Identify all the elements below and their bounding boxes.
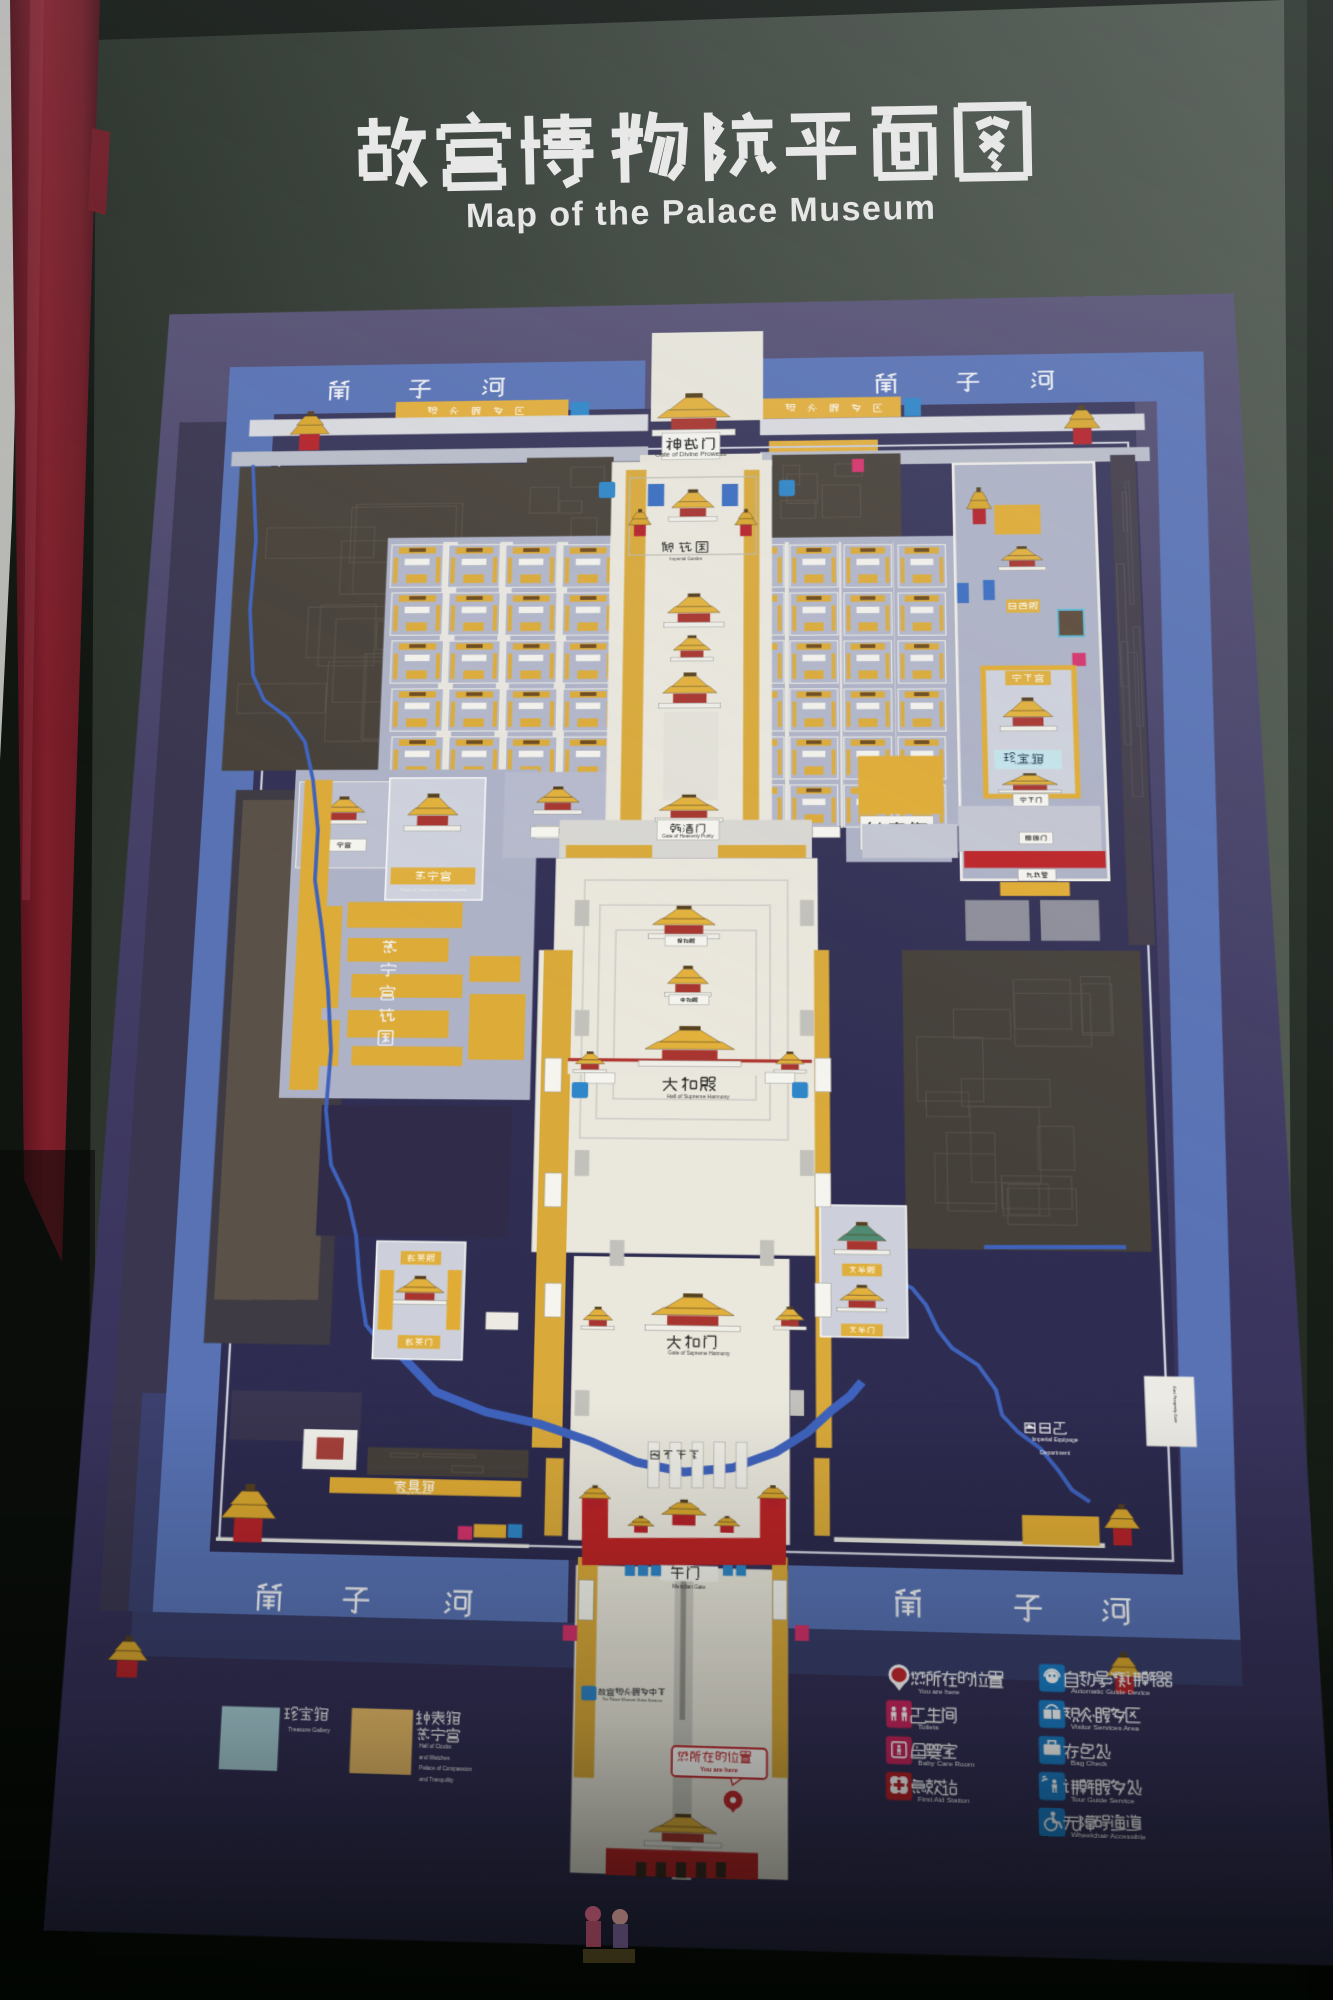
svg-text:and Tranquility: and Tranquility xyxy=(419,1776,455,1784)
svg-text:Treasure Gallery: Treasure Gallery xyxy=(1014,762,1042,766)
svg-text:You are here: You are here xyxy=(700,1766,738,1775)
svg-text:Toilets: Toilets xyxy=(918,1724,939,1732)
svg-text:Palace of Compassion and Tranq: Palace of Compassion and Tranquility xyxy=(400,888,467,892)
svg-text:and Watches: and Watches xyxy=(419,1754,450,1761)
svg-text:Department: Department xyxy=(1040,1450,1071,1457)
svg-text:Bag Check: Bag Check xyxy=(1071,1760,1108,1769)
svg-text:Gate of Supreme Harmony: Gate of Supreme Harmony xyxy=(668,1350,731,1357)
svg-text:Imperial Equipage: Imperial Equipage xyxy=(1032,1437,1079,1444)
svg-text:Baby Care Room: Baby Care Room xyxy=(918,1760,975,1770)
svg-text:You are here: You are here xyxy=(918,1688,960,1697)
svg-text:Imperial Garden: Imperial Garden xyxy=(669,556,702,561)
svg-text:Gate of Heavenly Purity: Gate of Heavenly Purity xyxy=(662,833,715,838)
svg-text:Treasure Gallery: Treasure Gallery xyxy=(288,1726,331,1734)
svg-text:Hall of Supreme Harmony: Hall of Supreme Harmony xyxy=(667,1093,731,1099)
svg-text:Gate of Divine Prowess: Gate of Divine Prowess xyxy=(655,452,726,459)
svg-text:First Aid Station: First Aid Station xyxy=(918,1796,970,1806)
svg-text:Gallery of Furniture: Gallery of Furniture xyxy=(397,1490,432,1496)
svg-text:Meridian Gate: Meridian Gate xyxy=(672,1584,706,1591)
svg-text:Hall of Clocks: Hall of Clocks xyxy=(419,1743,451,1750)
